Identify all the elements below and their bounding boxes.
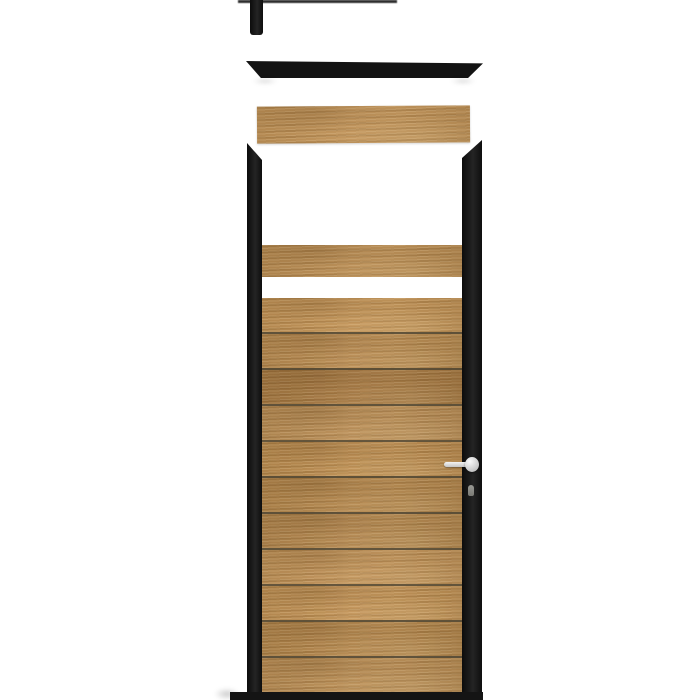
gate-slat — [262, 404, 462, 440]
gate-product-image — [0, 0, 700, 700]
gate-slat — [262, 548, 462, 584]
cap-shadow-right — [450, 78, 476, 84]
gate-slat — [262, 476, 462, 512]
base-bar — [230, 692, 483, 700]
frame-right-rail — [462, 140, 482, 700]
gate-slat — [262, 512, 462, 548]
keyhole-icon — [468, 485, 474, 496]
gate-slat — [262, 620, 462, 656]
door-handle-rose — [465, 457, 479, 472]
cap-shadow-left — [252, 78, 278, 84]
gate-slat — [262, 440, 462, 476]
gate-slat — [262, 368, 462, 404]
gate-slat — [262, 584, 462, 620]
slat-stack — [262, 298, 462, 692]
gate-slat — [262, 298, 462, 332]
gate-slat — [262, 332, 462, 368]
loose-plank — [257, 105, 470, 143]
bracket-vertical-bar — [250, 0, 263, 35]
gate-slat — [262, 656, 462, 692]
frame-left-rail — [247, 143, 262, 700]
fixed-upper-plank — [262, 245, 462, 277]
top-cap-rail — [246, 61, 483, 78]
